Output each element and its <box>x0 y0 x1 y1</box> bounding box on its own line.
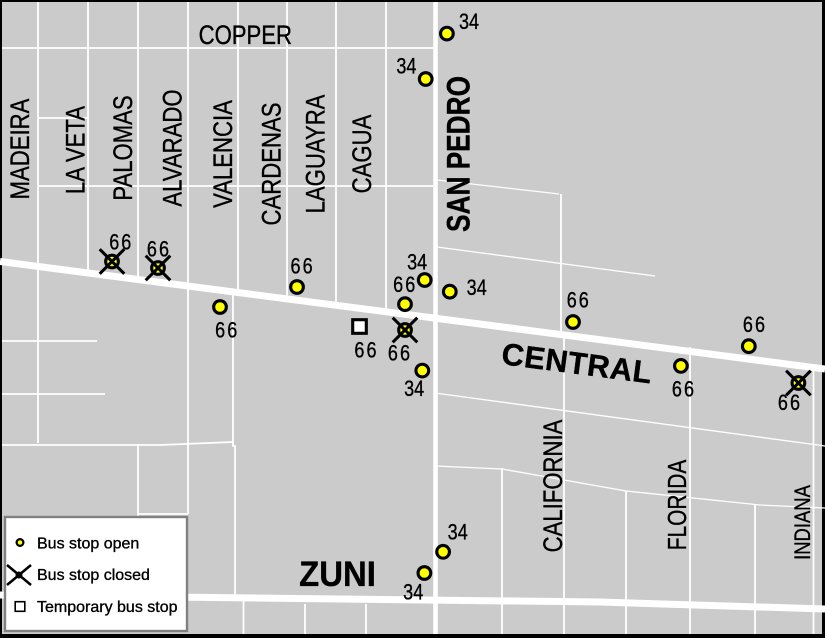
svg-text:66: 66 <box>743 313 767 337</box>
svg-text:66: 66 <box>393 273 417 297</box>
svg-text:FLORIDA: FLORIDA <box>663 459 691 550</box>
svg-text:66: 66 <box>291 255 315 279</box>
svg-text:CARDENAS: CARDENAS <box>258 103 288 226</box>
svg-text:CAGUA: CAGUA <box>348 114 378 193</box>
svg-text:66: 66 <box>778 391 802 415</box>
svg-text:66: 66 <box>388 342 412 366</box>
svg-text:34: 34 <box>459 10 479 34</box>
svg-text:LA VETA: LA VETA <box>62 105 92 194</box>
svg-text:66: 66 <box>147 238 171 262</box>
svg-text:PALOMAS: PALOMAS <box>109 95 139 200</box>
svg-text:VALENCIA: VALENCIA <box>209 100 239 208</box>
svg-text:66: 66 <box>109 231 133 255</box>
svg-text:CALIFORNIA: CALIFORNIA <box>539 419 569 552</box>
svg-text:66: 66 <box>672 378 696 402</box>
svg-text:34: 34 <box>467 276 487 300</box>
svg-text:ALVARADO: ALVARADO <box>159 89 189 206</box>
svg-text:34: 34 <box>448 521 468 545</box>
svg-text:Bus stop closed: Bus stop closed <box>37 567 150 584</box>
svg-text:34: 34 <box>404 378 424 402</box>
svg-text:66: 66 <box>567 289 591 313</box>
svg-text:MADEIRA: MADEIRA <box>6 98 36 199</box>
svg-text:COPPER: COPPER <box>199 21 292 51</box>
svg-text:ZUNI: ZUNI <box>299 555 376 594</box>
svg-text:34: 34 <box>407 251 427 275</box>
svg-text:Temporary bus stop: Temporary bus stop <box>37 599 178 616</box>
svg-text:SAN PEDRO: SAN PEDRO <box>442 76 477 232</box>
svg-text:INDIANA: INDIANA <box>790 485 815 560</box>
svg-text:LAGUAYRA: LAGUAYRA <box>302 94 332 213</box>
svg-text:66: 66 <box>215 319 239 343</box>
svg-text:34: 34 <box>396 55 416 79</box>
svg-text:34: 34 <box>403 581 423 605</box>
svg-text:66: 66 <box>354 339 378 363</box>
svg-text:Bus stop open: Bus stop open <box>37 536 139 553</box>
